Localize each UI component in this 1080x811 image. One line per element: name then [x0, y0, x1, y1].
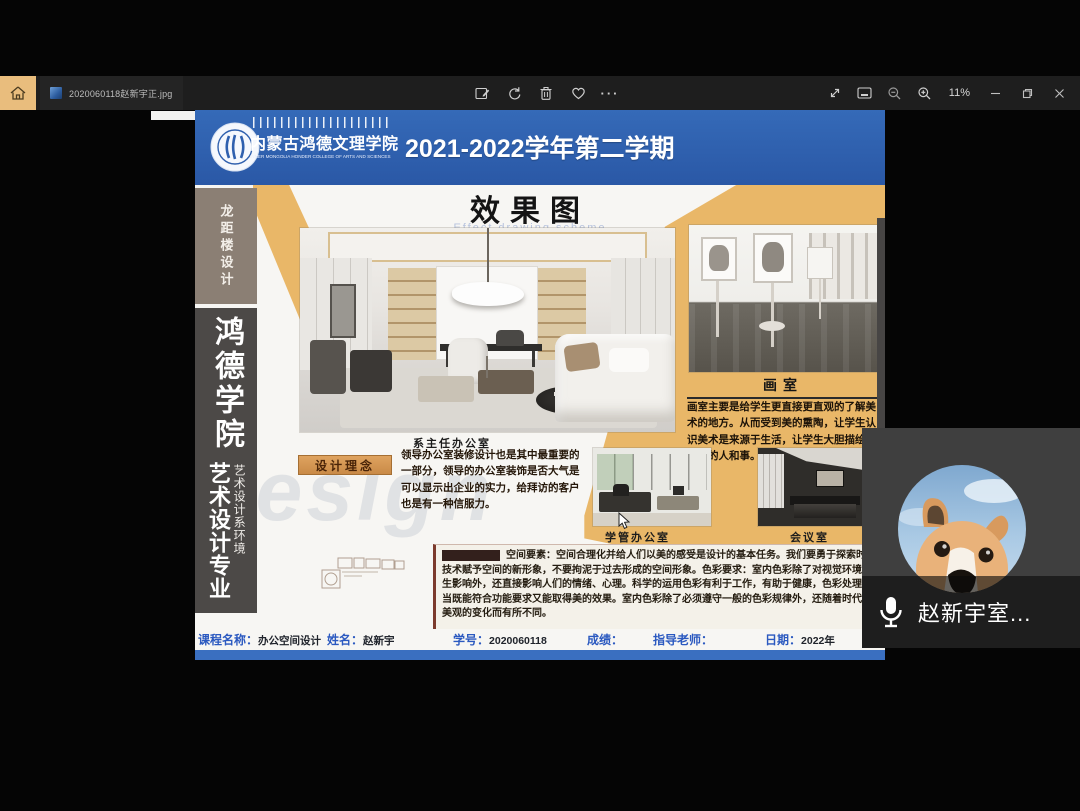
microphone-icon [878, 595, 904, 629]
concept-description: 领导办公室装修设计也是其中最重要的一部分，领导的办公室装饰是否大气是可以显示出企… [401, 447, 581, 512]
description-label-chip [442, 550, 500, 561]
tab-thumbnail [50, 87, 62, 99]
course-label: 课程名称： [198, 633, 258, 647]
concept-label: 设计理念 [298, 455, 392, 475]
favorite-button[interactable] [566, 81, 590, 105]
participant-name: 赵新宇室... [918, 596, 1031, 628]
more-button[interactable]: ··· [598, 81, 622, 105]
fullscreen-icon [828, 86, 842, 100]
sidebar-major-label: 艺术设计专业 [207, 462, 230, 600]
toolbar-center: ··· [470, 76, 622, 110]
photo-edge [151, 111, 195, 120]
trash-icon [539, 86, 553, 101]
zoom-out-icon [887, 86, 902, 101]
edit-image-icon [475, 86, 490, 101]
poster-header: 内蒙古鸿德文理学院 INNER MONGOLIA HONDER COLLEGE … [195, 110, 885, 185]
easel-canvas-3 [807, 247, 833, 279]
sidebar-dept-label: 艺术设计系环境 [232, 464, 245, 555]
display-cabinet [330, 284, 356, 338]
caption-admin-office: 学管办公室 [605, 529, 670, 545]
ottoman-light [418, 376, 474, 402]
render-art-studio [689, 225, 879, 372]
rotate-button[interactable] [502, 81, 526, 105]
student-id-label: 学号： [453, 633, 489, 647]
toolbar-right: 11% [823, 76, 1072, 110]
caption-studio: 画室 [687, 375, 879, 399]
edit-image-button[interactable] [470, 81, 494, 105]
image-tab[interactable]: 2020060118赵新宇正.jpg [40, 76, 183, 110]
sidebar-project-label: 龙距楼设计 [217, 204, 236, 289]
easel-canvas-1 [701, 237, 737, 281]
sidebar-college-label: 鸿德学院 [211, 316, 241, 452]
screen: 2020060118赵新宇正.jpg ··· [0, 0, 1080, 811]
participant-avatar [898, 465, 1026, 593]
desk-chair [496, 330, 524, 346]
poster-body: Design 龙距楼设计 鸿德学院 艺术设计专业 艺术设计系环境 效果图 Eff… [195, 185, 885, 660]
pendant-cord [487, 228, 489, 286]
college-name-cn: 内蒙古鸿德文理学院 [250, 130, 400, 154]
lounge-chair-1 [310, 340, 346, 394]
date-value: 2022年 [801, 635, 835, 647]
bookshelf-left [388, 268, 436, 360]
zoom-in-icon [917, 86, 932, 101]
mouse-cursor [618, 512, 631, 530]
zoom-out-button[interactable] [883, 81, 907, 105]
minimize-icon [990, 88, 1001, 99]
semester-title: 2021-2022学年第二学期 [405, 129, 735, 165]
wall-sculpture [452, 282, 524, 306]
sofa-pillow [563, 342, 600, 372]
poster-image[interactable]: 内蒙古鸿德文理学院 INNER MONGOLIA HONDER COLLEGE … [195, 110, 885, 660]
design-description-text: 空间要素：空间合理化并给人们以美的感受是设计的基本任务。我们要勇于探索时代技术赋… [442, 550, 876, 619]
home-icon [10, 86, 26, 101]
close-button[interactable] [1046, 81, 1072, 105]
teacher-label: 指导老师： [653, 633, 713, 647]
course-value: 办公空间设计 [258, 635, 321, 647]
render-meeting-room [758, 448, 877, 526]
minimize-button[interactable] [982, 81, 1008, 105]
fit-window-button[interactable] [853, 81, 877, 105]
tab-filename: 2020060118赵新宇正.jpg [69, 87, 173, 100]
close-icon [1054, 88, 1065, 99]
photos-titlebar: 2020060118赵新宇正.jpg ··· [0, 76, 1080, 110]
caption-meeting-room: 会议室 [790, 529, 829, 545]
rotate-icon [507, 86, 522, 101]
meeting-wall [758, 454, 784, 508]
meeting-screen [816, 470, 844, 487]
grade-label: 成绩： [587, 633, 623, 647]
poster-bottom-band [195, 650, 885, 660]
office-desk-light [657, 496, 699, 510]
easel-canvas-2 [753, 233, 793, 283]
name-label: 姓名： [327, 633, 363, 647]
participant-name-bar: 赵新宇室... [862, 576, 1080, 648]
maximize-icon [1022, 88, 1033, 99]
design-description-block: 空间要素：空间合理化并给人们以美的感受是设计的基本任务。我们要勇于探索时代技术赋… [433, 544, 885, 632]
college-name-en: INNER MONGOLIA HONDER COLLEGE OF ARTS AN… [250, 154, 410, 159]
date-label: 日期： [765, 633, 801, 647]
mongolian-script-decoration [253, 117, 393, 128]
maximize-button[interactable] [1014, 81, 1040, 105]
zoom-level: 11% [949, 87, 970, 99]
poster-footer: 课程名称：办公空间设计 姓名：赵新宇 学号：2020060118 成绩： 指导老… [195, 629, 885, 650]
render-admin-office [593, 448, 711, 526]
fullscreen-button[interactable] [823, 81, 847, 105]
lounge-chair-2 [350, 350, 392, 392]
render-director-office [300, 228, 675, 432]
call-participant-tile[interactable]: 赵新宇室... [862, 428, 1080, 648]
name-value: 赵新宇 [363, 635, 395, 647]
floor-plan-sketch [318, 552, 414, 600]
fit-window-icon [857, 87, 872, 99]
zoom-in-button[interactable] [913, 81, 937, 105]
sidebar-college-box: 鸿德学院 艺术设计专业 艺术设计系环境 [195, 308, 257, 613]
heart-icon [571, 86, 586, 100]
sidebar-project-box: 龙距楼设计 [195, 188, 257, 304]
home-button[interactable] [0, 76, 36, 110]
student-id-value: 2020060118 [489, 635, 547, 647]
corgi-avatar-image [898, 465, 1026, 593]
delete-button[interactable] [534, 81, 558, 105]
